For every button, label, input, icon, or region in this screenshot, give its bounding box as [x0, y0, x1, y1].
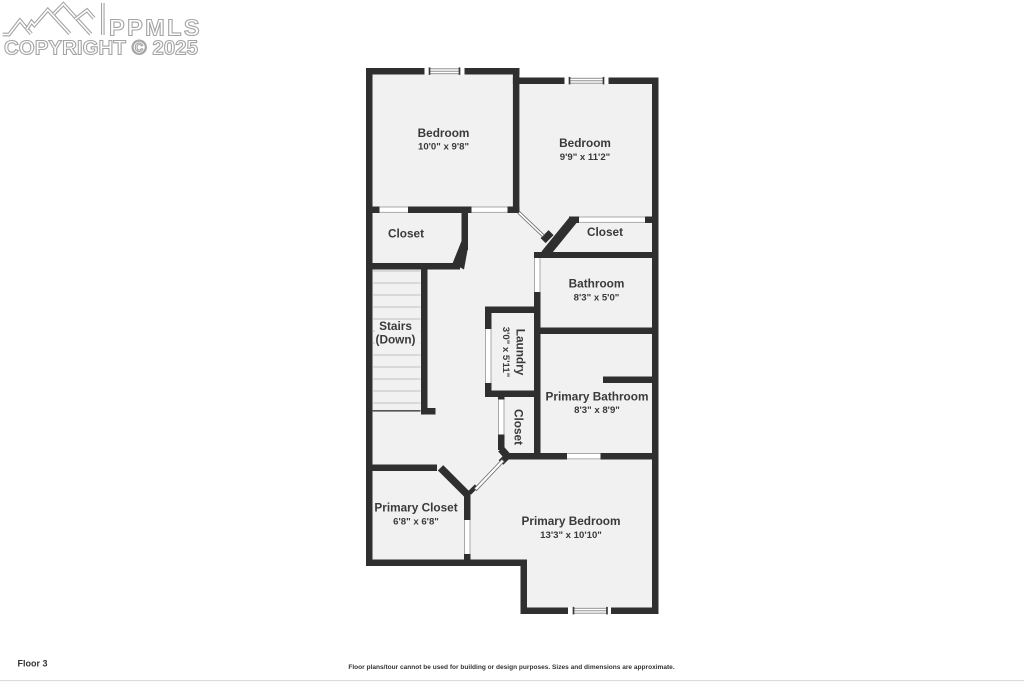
svg-text:Primary Bathroom: Primary Bathroom: [546, 390, 649, 404]
svg-text:Bedroom: Bedroom: [559, 136, 611, 150]
svg-text:Floor 3: Floor 3: [18, 659, 48, 669]
svg-text:Closet: Closet: [512, 409, 526, 445]
svg-text:3'0" x 5'11": 3'0" x 5'11": [500, 327, 511, 377]
svg-text:Bedroom: Bedroom: [418, 126, 470, 140]
svg-text:8'3" x 5'0": 8'3" x 5'0": [574, 293, 620, 304]
svg-text:Stairs: Stairs: [379, 319, 412, 333]
svg-text:Primary Bedroom: Primary Bedroom: [522, 514, 621, 528]
svg-text:9'9" x 11'2": 9'9" x 11'2": [560, 152, 610, 163]
svg-text:(Down): (Down): [376, 333, 416, 347]
svg-text:Closet: Closet: [388, 227, 424, 241]
svg-text:10'0" x 9'8": 10'0" x 9'8": [418, 142, 469, 153]
svg-text:Closet: Closet: [587, 225, 623, 239]
svg-text:8'3" x 8'9": 8'3" x 8'9": [574, 405, 620, 416]
svg-text:Primary Closet: Primary Closet: [374, 501, 457, 515]
svg-text:13'3" x 10'10": 13'3" x 10'10": [540, 530, 602, 541]
svg-text:COPYRIGHT © 2025: COPYRIGHT © 2025: [4, 37, 198, 60]
svg-text:Bathroom: Bathroom: [569, 277, 625, 291]
svg-text:Laundry: Laundry: [513, 329, 527, 376]
svg-text:Floor plans/tour cannot be use: Floor plans/tour cannot be used for buil…: [348, 664, 674, 671]
svg-text:6'8" x 6'8": 6'8" x 6'8": [393, 517, 439, 528]
